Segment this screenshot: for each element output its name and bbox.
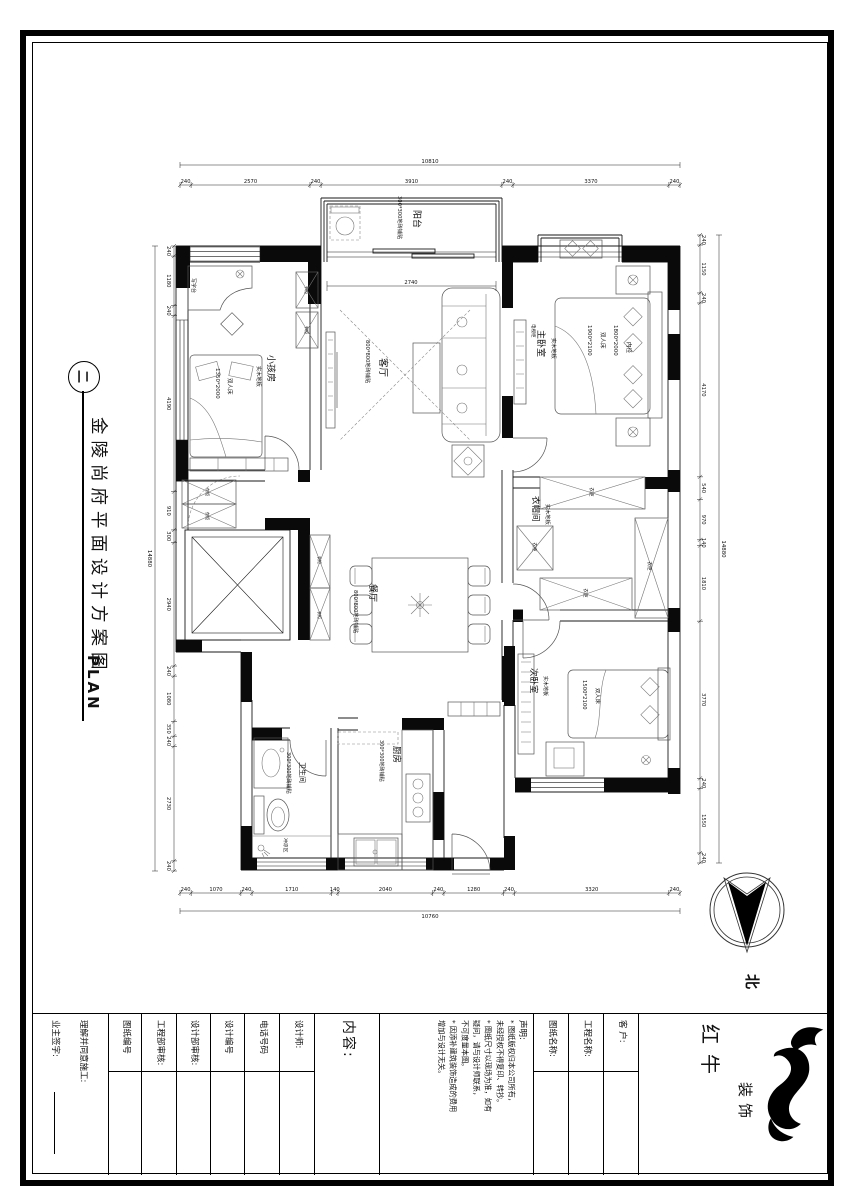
second-desk (546, 742, 584, 776)
furniture-label: 衣柜 (204, 488, 211, 496)
svg-text:1180: 1180 (165, 274, 171, 287)
tb-cell-eng-review: 工程部审核: (141, 1014, 176, 1175)
bull-logo-icon (743, 1018, 827, 1170)
room-label: 餐厅 (367, 584, 379, 602)
bed-spec: 双人床 (226, 378, 234, 395)
tb-cell-declaration: 声明: * 图纸版权归本公司所有， 未经授权不得复印、转抄。 * 图纸尺寸以现场… (379, 1014, 533, 1175)
floor-label: 实木地板 (542, 676, 549, 696)
svg-text:240: 240 (165, 861, 171, 871)
tb-cell-drawing-no: 图纸编号 (108, 1014, 141, 1175)
svg-text:240: 240 (700, 778, 706, 788)
svg-text:3370: 3370 (584, 179, 597, 185)
bed-spec: 内径 (625, 342, 633, 354)
toilet (267, 799, 289, 831)
svg-text:1710: 1710 (285, 887, 298, 893)
furniture-label: 衣柜 (646, 562, 653, 571)
furniture-label: 衣柜 (582, 589, 589, 598)
furniture-label: 衣柜 (204, 512, 211, 520)
svg-text:240: 240 (504, 887, 514, 893)
room-label: 客厅 (377, 358, 389, 378)
room-label: 衣帽间 (530, 496, 541, 522)
floor-label: 300*300地砖铺贴 (378, 740, 385, 782)
furniture-label: 衣柜 (588, 488, 595, 497)
toilet-tank (254, 796, 264, 834)
svg-text:1150: 1150 (700, 262, 706, 275)
svg-text:240: 240 (181, 179, 191, 185)
room-label: 阳台 (411, 210, 423, 228)
tb-label: 设计编号 (223, 1020, 235, 1054)
floor-label: 800*800地砖铺贴 (364, 340, 372, 383)
svg-text:2730: 2730 (165, 797, 171, 810)
bed-spec: 1500*2100 (581, 680, 587, 710)
tb-label: 工程名称: (582, 1020, 594, 1057)
svg-text:350: 350 (165, 724, 171, 734)
tv-cabinet-master (514, 320, 526, 404)
svg-text:14880: 14880 (720, 540, 726, 558)
floor-label: 800*800地砖铺贴 (352, 590, 360, 633)
bed-spec: 双人床 (594, 688, 602, 705)
shower-head-icon (258, 845, 264, 851)
master-bed (555, 298, 650, 414)
svg-text:240: 240 (165, 306, 171, 316)
tb-label: 图纸名称: (547, 1020, 559, 1057)
svg-text:540: 540 (700, 483, 706, 493)
floor-label: 实木地板 (255, 366, 263, 388)
drawing-title-block: 二 金陵尚府平面设计方案图 PLAN (60, 355, 116, 735)
floor-label: 实木地板 (544, 504, 552, 526)
svg-text:3320: 3320 (585, 887, 598, 893)
svg-text:240: 240 (165, 666, 171, 676)
tb-cell-design-review: 设计部审核: (176, 1014, 210, 1175)
tb-cell-designer: 设计师: (279, 1014, 314, 1175)
tb-label-agree: 理解并同意施工: (78, 1020, 90, 1082)
svg-text:240: 240 (700, 293, 706, 303)
stove (406, 774, 430, 822)
title-block: 理解并同意施工: 业主签字: 图纸编号 工程部审核: 设计部审核: 设计编号 电… (32, 1013, 828, 1174)
svg-text:1550: 1550 (700, 814, 706, 827)
room-label: 小孩房 (265, 355, 277, 382)
svg-text:2040: 2040 (379, 887, 392, 893)
tb-label-content: 内容: (339, 1020, 359, 1059)
area-label: 冲凉区 (282, 838, 289, 853)
room-label: 卫生间 (298, 762, 307, 783)
tb-label-owner-sign: 业主签字: (50, 1020, 62, 1057)
logo-text-hongniu: 红牛 (697, 1024, 726, 1084)
page-title: 金陵尚府平面设计方案图 (87, 417, 112, 676)
room-label: 厨房 (391, 746, 402, 763)
tb-cell-drawing-name: 图纸名称: (533, 1014, 568, 1175)
svg-text:240: 240 (181, 887, 191, 893)
declaration-title: 声明: (517, 1020, 529, 1040)
furniture-label: 书柜 (303, 286, 310, 294)
svg-text:3770: 3770 (700, 693, 706, 706)
tb-cell-design-no: 设计编号 (210, 1014, 244, 1175)
basin-counter (254, 738, 288, 788)
desk-chair (221, 313, 244, 336)
room-label: 主卧室 (535, 330, 547, 357)
tb-cell-logo: 红牛 装饰 (638, 1014, 828, 1175)
svg-text:14880: 14880 (146, 550, 152, 568)
tb-cell-content: 内容: (314, 1014, 379, 1175)
svg-text:10810: 10810 (421, 159, 439, 165)
svg-text:240: 240 (503, 179, 513, 185)
bay-plant (560, 240, 602, 258)
svg-text:4170: 4170 (700, 383, 706, 396)
svg-text:2570: 2570 (244, 179, 257, 185)
floor-label: 实木地板 (550, 338, 558, 360)
svg-text:240: 240 (165, 736, 171, 746)
tb-label: 图纸编号 (121, 1020, 133, 1054)
svg-text:2940: 2940 (165, 598, 171, 611)
svg-text:240: 240 (311, 179, 321, 185)
furniture-label: 电视柜 (530, 324, 537, 338)
svg-text:1280: 1280 (467, 887, 480, 893)
tb-label: 设计部审核: (189, 1020, 201, 1065)
page-title-sub: PLAN (84, 655, 102, 712)
bed-spec: 双人床 (599, 332, 607, 349)
tb-cell-client: 客 户: (603, 1014, 638, 1175)
floor-label: 300*300地砖铺贴 (396, 196, 404, 239)
figure-index: 二 (75, 370, 94, 383)
svg-text:970: 970 (700, 515, 706, 525)
bed-spec: 1800*2000 (612, 325, 618, 356)
tv-cabinet (326, 332, 335, 428)
furniture-label: 衣柜 (317, 611, 323, 619)
svg-text:910: 910 (165, 506, 171, 516)
svg-text:140: 140 (330, 887, 340, 893)
svg-text:4190: 4190 (165, 397, 171, 410)
furniture-label: 衣柜 (531, 543, 538, 552)
furniture (182, 206, 670, 870)
wall-lines (176, 198, 680, 874)
tb-label: 设计师: (293, 1020, 305, 1048)
kids-bed (190, 355, 262, 457)
tb-label: 客 户: (617, 1020, 629, 1043)
tb-cell-phone: 电话号码 (244, 1014, 279, 1175)
svg-text:240: 240 (433, 887, 443, 893)
svg-text:1810: 1810 (700, 577, 706, 590)
compass-icon (692, 852, 808, 972)
furniture-label: 写字台 (190, 278, 197, 293)
floor-plan: 阳台 300*300地砖铺贴 客厅 800*800地砖铺贴 小孩房 实木地板 1… (140, 140, 730, 930)
figure-index-bubble: 二 (68, 361, 100, 393)
north-label: 北 (742, 974, 763, 989)
svg-text:240: 240 (241, 887, 251, 893)
kitchen-counter (402, 730, 433, 870)
signature-line (54, 1092, 55, 1154)
inner-dim: 2740 (404, 280, 417, 286)
svg-text:10760: 10760 (421, 914, 439, 920)
tb-label: 工程部审核: (155, 1020, 167, 1065)
svg-text:240: 240 (669, 179, 679, 185)
tb-cell-project-name: 工程名称: (568, 1014, 603, 1175)
bed-spec: 1350*2000 (214, 368, 220, 399)
plant-table (452, 445, 484, 477)
svg-text:240: 240 (669, 887, 679, 893)
svg-text:240: 240 (700, 235, 706, 245)
room-label: 次卧室 (528, 668, 539, 694)
svg-text:3910: 3910 (405, 179, 418, 185)
svg-text:300: 300 (165, 531, 171, 541)
room-labels: 阳台 300*300地砖铺贴 客厅 800*800地砖铺贴 小孩房 实木地板 1… (190, 196, 653, 853)
floor-label: 300*300地砖铺贴 (285, 752, 292, 794)
tb-cell-owner: 理解并同意施工: 业主签字: (32, 1014, 108, 1175)
svg-text:140: 140 (700, 538, 706, 548)
svg-text:240: 240 (165, 246, 171, 256)
declaration-text: * 图纸版权归本公司所有， 未经授权不得复印、转抄。 * 图纸尺寸以现场为准，如… (435, 1020, 517, 1112)
sofa (442, 288, 500, 442)
furniture-label: 书柜 (303, 326, 310, 334)
svg-text:1080: 1080 (165, 692, 171, 705)
north-compass: 北 (692, 852, 808, 1012)
bed-spec: 1900*2100 (586, 325, 592, 356)
desk (188, 266, 252, 310)
svg-text:1070: 1070 (209, 887, 222, 893)
furniture-label: 衣柜 (317, 556, 323, 564)
drawing-sheet: 二 金陵尚府平面设计方案图 PLAN (0, 0, 860, 1200)
table-flower (408, 593, 432, 617)
tb-label: 电话号码 (258, 1020, 270, 1054)
